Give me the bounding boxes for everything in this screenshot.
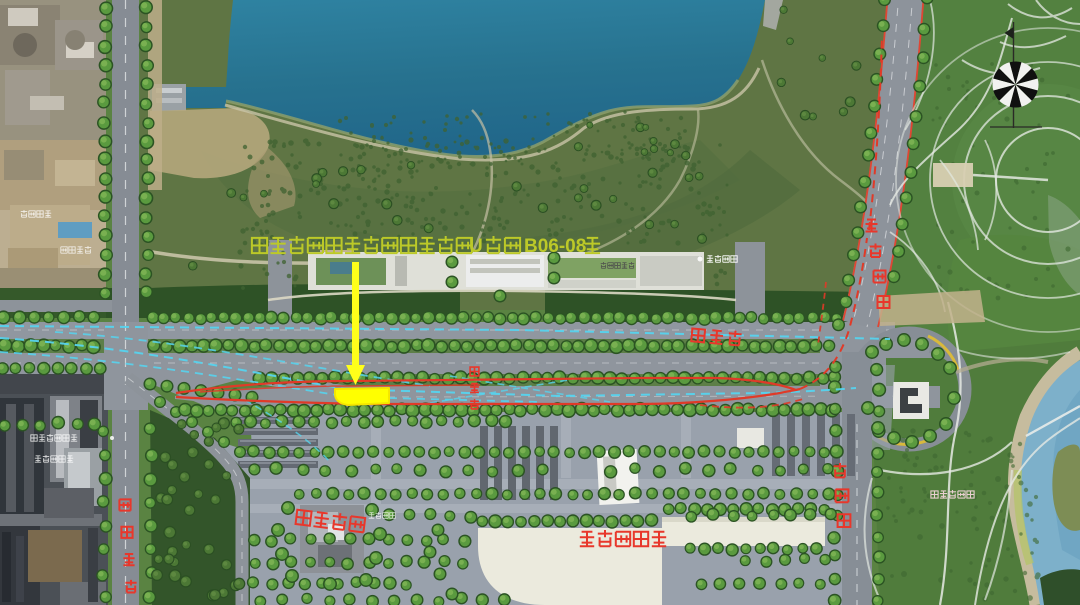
svg-text:U: U <box>469 236 483 257</box>
svg-text:B06-08: B06-08 <box>524 236 586 257</box>
